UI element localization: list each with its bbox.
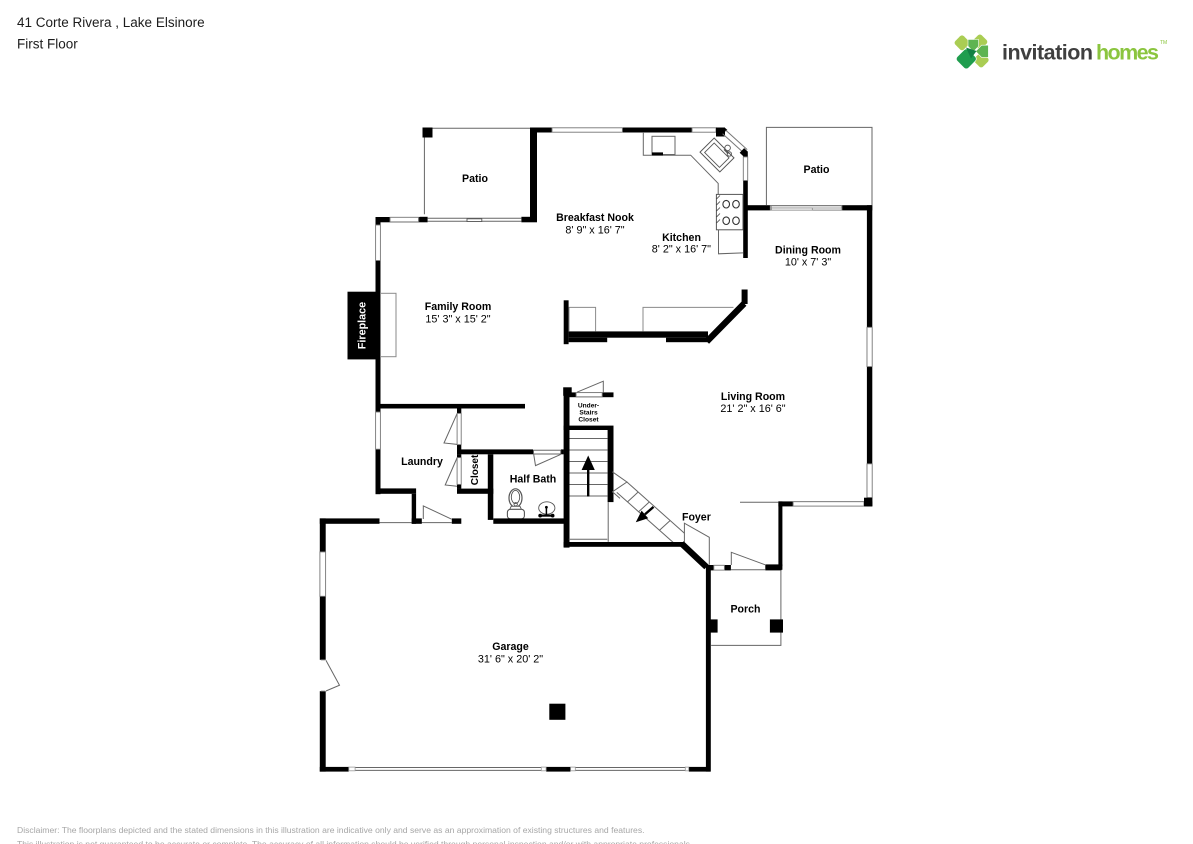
svg-text:21' 2" x 16' 6": 21' 2" x 16' 6" (720, 403, 785, 415)
svg-text:This illustration is not guara: This illustration is not guaranteed to b… (17, 839, 692, 844)
svg-text:Garage: Garage (492, 641, 529, 653)
svg-text:8' 2" x 16' 7": 8' 2" x 16' 7" (652, 244, 711, 256)
svg-text:Closet: Closet (578, 417, 599, 424)
svg-text:Patio: Patio (462, 173, 488, 185)
svg-text:Porch: Porch (730, 604, 760, 616)
svg-text:homes: homes (1096, 41, 1159, 65)
svg-text:41 Corte Rivera , Lake Elsinor: 41 Corte Rivera , Lake Elsinore (17, 15, 205, 30)
svg-text:Laundry: Laundry (401, 456, 443, 468)
svg-text:invitation: invitation (1002, 41, 1093, 65)
svg-text:First Floor: First Floor (17, 37, 78, 52)
svg-text:Closet: Closet (470, 454, 481, 485)
svg-text:10' x 7' 3": 10' x 7' 3" (785, 257, 832, 269)
svg-text:Family Room: Family Room (425, 301, 492, 313)
svg-text:Living Room: Living Room (721, 391, 785, 403)
svg-text:31' 6" x 20' 2": 31' 6" x 20' 2" (478, 653, 543, 665)
svg-text:Dining Room: Dining Room (775, 244, 841, 256)
svg-text:Disclaimer: The floorplans dep: Disclaimer: The floorplans depicted and … (17, 825, 645, 835)
svg-text:15' 3" x 15' 2": 15' 3" x 15' 2" (425, 314, 490, 326)
svg-text:Kitchen: Kitchen (662, 232, 701, 244)
svg-text:Fireplace: Fireplace (357, 302, 369, 349)
svg-text:TM: TM (1160, 40, 1167, 46)
svg-text:Patio: Patio (804, 164, 830, 176)
svg-text:Under-: Under- (578, 403, 599, 410)
svg-text:8' 9" x 16' 7": 8' 9" x 16' 7" (565, 225, 624, 237)
svg-text:Foyer: Foyer (682, 512, 711, 524)
svg-text:Stairs: Stairs (579, 410, 598, 417)
svg-text:Half Bath: Half Bath (510, 474, 557, 486)
svg-text:Breakfast Nook: Breakfast Nook (556, 212, 634, 224)
